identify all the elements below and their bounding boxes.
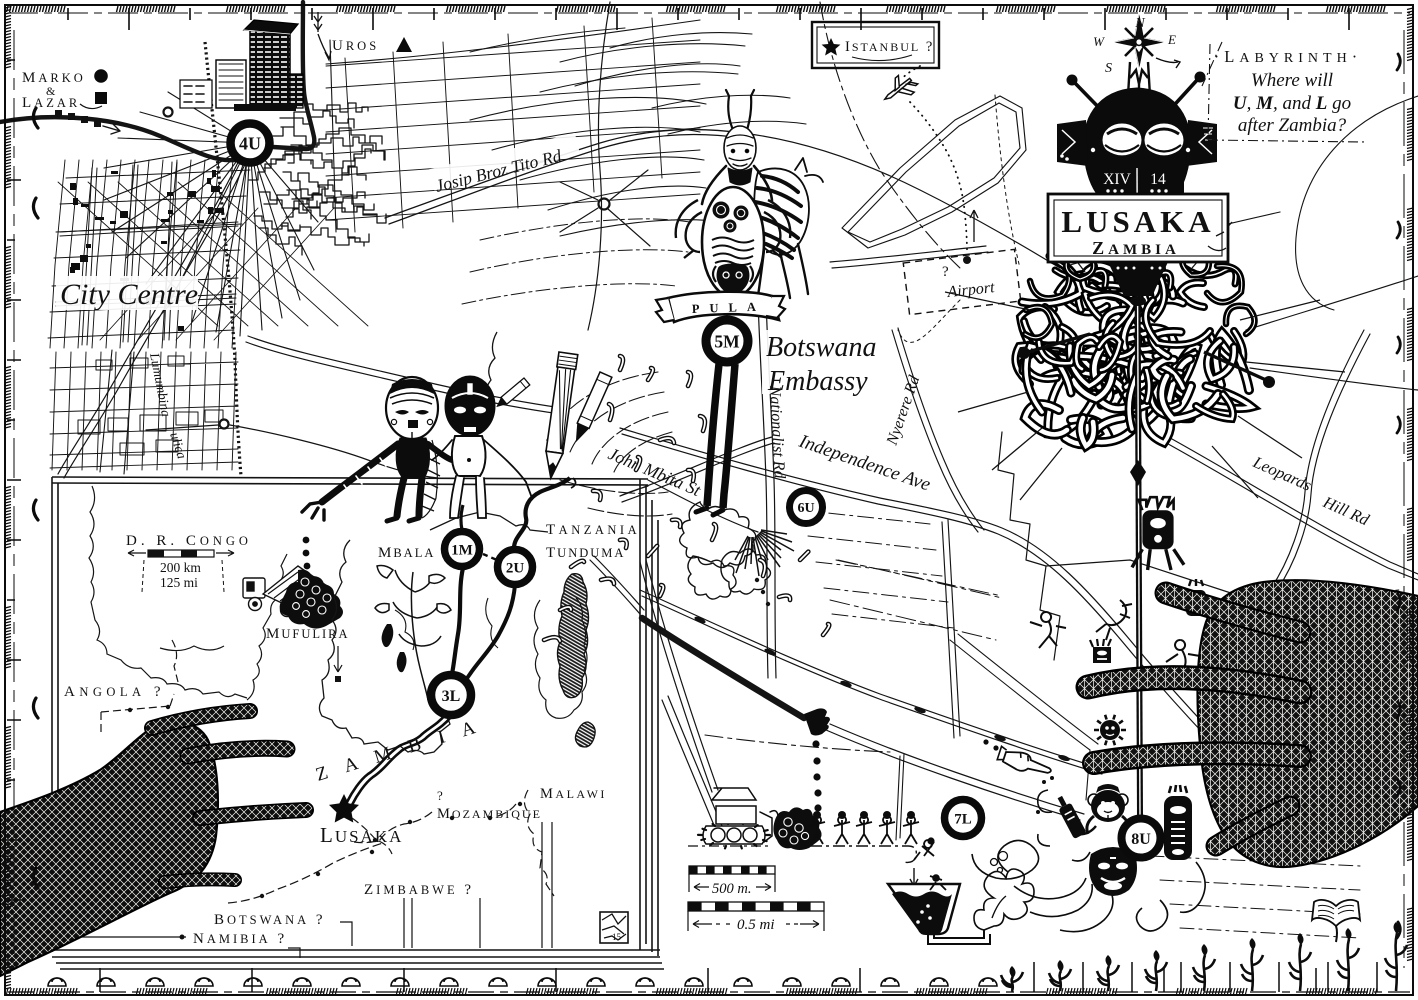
svg-text:UROS: UROS [332, 38, 379, 54]
svg-text:U, M, and L go: U, M, and L go [1233, 93, 1351, 114]
svg-text:City Centre: City Centre [60, 278, 198, 311]
svg-text:PULA: PULA [692, 299, 766, 316]
svg-text:LAZAR: LAZAR [22, 95, 80, 111]
svg-text:14: 14 [1150, 171, 1166, 188]
svg-text:NAMIBIA ?: NAMIBIA ? [193, 931, 287, 947]
svg-text:S: S [1105, 61, 1112, 76]
svg-text:Where will: Where will [1251, 70, 1333, 91]
svg-text:ANGOLA ?: ANGOLA ? [64, 684, 165, 700]
svg-text:TANZANIA: TANZANIA [546, 522, 640, 538]
svg-text:W: W [1093, 34, 1105, 49]
svg-text:1M: 1M [451, 542, 473, 558]
svg-text:E: E [1167, 32, 1176, 47]
svg-text:N: N [1134, 16, 1145, 31]
svg-text:125 mi: 125 mi [160, 575, 198, 590]
svg-text:?: ? [942, 264, 949, 280]
svg-text:0.5 mi: 0.5 mi [737, 917, 775, 933]
svg-text:6U: 6U [797, 501, 814, 516]
svg-text:XIV: XIV [1103, 171, 1131, 188]
svg-text:LUSAKA: LUSAKA [320, 823, 403, 847]
svg-text:MBALA: MBALA [378, 545, 435, 561]
svg-text:200 km: 200 km [160, 560, 201, 575]
svg-text:MUFULIRA: MUFULIRA [266, 626, 350, 642]
svg-text:MOZAMBIQUE: MOZAMBIQUE [437, 806, 542, 822]
svg-text:2U: 2U [506, 560, 525, 576]
svg-text:BOTSWANA ?: BOTSWANA ? [214, 912, 326, 928]
svg-text:500 m.: 500 m. [712, 881, 751, 897]
svg-text:7L: 7L [954, 811, 972, 827]
svg-text:Botswana: Botswana [766, 332, 876, 363]
svg-text:ZIMBABWE ?: ZIMBABWE ? [364, 882, 474, 898]
svg-text:D. R. CONGO: D. R. CONGO [126, 533, 252, 549]
svg-text:3L: 3L [442, 688, 461, 705]
svg-text:?: ? [437, 788, 443, 803]
svg-text:MALAWI: MALAWI [540, 786, 607, 802]
svg-text:ISTANBUL ?: ISTANBUL ? [845, 39, 934, 55]
svg-text:4U: 4U [239, 133, 261, 153]
svg-text:after Zambia?: after Zambia? [1238, 115, 1347, 136]
svg-text:TUNDUMA: TUNDUMA [546, 545, 625, 561]
svg-text:5M: 5M [714, 331, 740, 351]
svg-text:8U: 8U [1131, 831, 1151, 848]
svg-text:LUSAKA: LUSAKA [1061, 204, 1214, 239]
svg-text:15: 15 [612, 932, 622, 942]
